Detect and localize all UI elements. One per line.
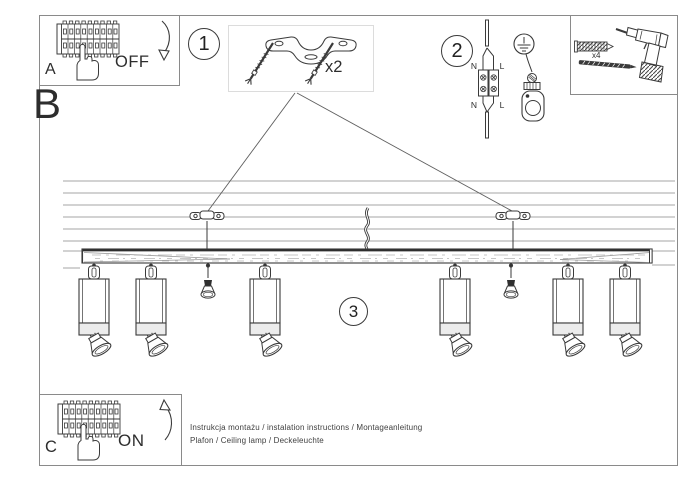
- breaker-panel-icon: [57, 21, 119, 57]
- section-a-label: A: [45, 61, 56, 79]
- anchor-quantity-label: x4: [592, 51, 600, 60]
- spotlight: [610, 264, 644, 359]
- bulb-socket-pin: [206, 264, 512, 278]
- ceiling-bracket-right-icon: [496, 211, 530, 249]
- tools-box: x4: [570, 15, 678, 95]
- step-1-number: 1: [198, 33, 209, 56]
- terminal-block-icon: [479, 70, 499, 96]
- breaker-panel-on-illustration: [40, 395, 181, 465]
- spotlight: [136, 264, 170, 359]
- step-3-badge: 3: [339, 297, 368, 326]
- curved-arrow-up-icon: [160, 400, 172, 440]
- breaker-panel-icon: [58, 401, 120, 437]
- panel-power-off-box: A OFF: [39, 15, 180, 86]
- gu10-bulb-pendant-icon: [504, 280, 518, 298]
- track-rail: [82, 249, 652, 263]
- wiring-diagram: N L N L: [452, 12, 552, 144]
- spotlight: [553, 264, 587, 359]
- spotlight: [79, 264, 113, 359]
- screw-icon: [579, 60, 637, 69]
- installation-instruction-sheet: A OFF B 1: [0, 0, 688, 486]
- power-on-label: ON: [118, 431, 145, 451]
- curved-arrow-down-icon: [159, 21, 169, 60]
- bracket-quantity-label: x2: [325, 58, 342, 77]
- bracket-parts-box: [228, 25, 374, 92]
- footer-caption-line2: Plafon / Ceiling lamp / Deckeleuchte: [190, 435, 324, 448]
- step-3-number: 3: [349, 302, 358, 322]
- drill-icon: [616, 28, 668, 83]
- section-b-label: B: [33, 80, 61, 128]
- terminal-label-n-bottom: N: [471, 100, 477, 110]
- spotlight: [440, 264, 474, 359]
- power-off-label: OFF: [115, 53, 150, 72]
- ground-clamp-icon: [522, 74, 544, 122]
- spotlight: [250, 264, 284, 359]
- earth-wire: [526, 54, 532, 72]
- terminal-label-l-top: L: [500, 61, 505, 71]
- mounting-bracket-icon: [266, 37, 356, 64]
- section-c-label: C: [45, 438, 57, 457]
- supply-cable-icon: [483, 20, 494, 70]
- gu10-bulb-pendant-icon: [201, 280, 215, 298]
- tools-illustration: [571, 16, 677, 94]
- lamp-cable-icon: [483, 96, 494, 138]
- footer-caption-line1: Instrukcja montażu / instalation instruc…: [190, 422, 422, 435]
- terminal-label-n-top: N: [471, 61, 477, 71]
- step-1-badge: 1: [188, 28, 220, 60]
- earth-symbol-icon: [514, 34, 534, 54]
- ceiling-bracket-left-icon: [190, 211, 224, 249]
- bracket-parts-illustration: [229, 26, 373, 91]
- terminal-label-l-bottom: L: [500, 100, 505, 110]
- panel-power-on-box: C ON: [39, 394, 182, 466]
- breaker-panel-off-illustration: [40, 16, 179, 85]
- expansion-screw-icon: [245, 41, 276, 85]
